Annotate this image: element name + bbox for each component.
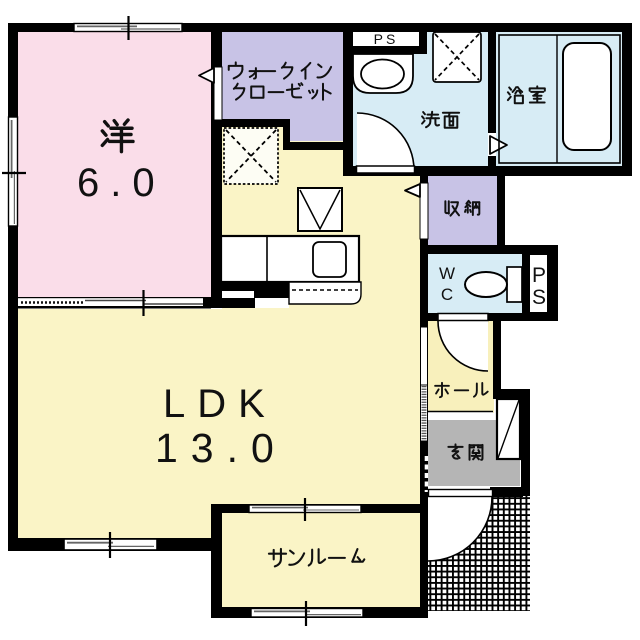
svg-text:S: S (532, 286, 546, 309)
svg-text:P: P (532, 264, 546, 287)
svg-text:LDK: LDK (163, 382, 277, 426)
svg-text:W: W (439, 264, 455, 283)
svg-text:PS: PS (374, 31, 399, 47)
svg-text:C: C (441, 285, 453, 304)
svg-text:6.0: 6.0 (77, 161, 166, 205)
svg-text:13.0: 13.0 (155, 425, 287, 471)
